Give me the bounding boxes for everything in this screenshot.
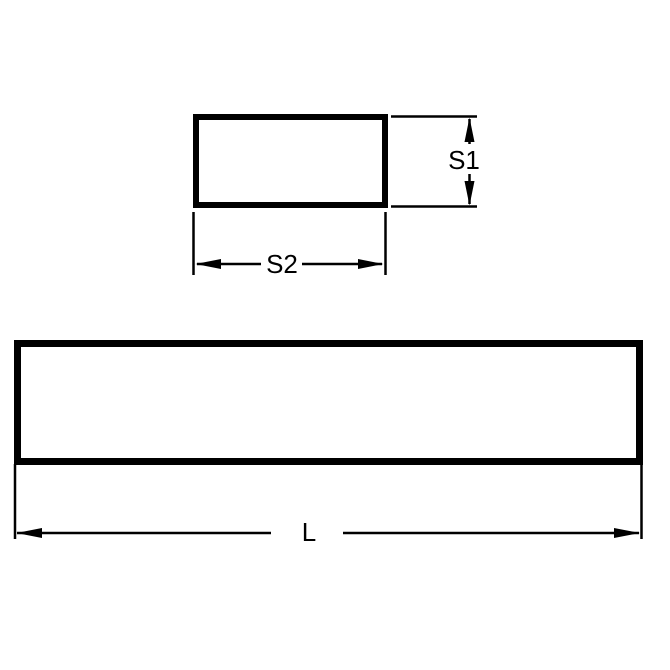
- s2-dimension: S2: [194, 212, 386, 279]
- s1-dimension-label: S1: [448, 145, 480, 175]
- s1-arrowhead-down-icon: [465, 181, 475, 206]
- drawing-canvas: S1 S2 L: [0, 0, 670, 670]
- technical-drawing: S1 S2 L: [0, 0, 670, 670]
- cross-section-view: S1 S2: [194, 117, 480, 280]
- side-view-rectangle: [18, 344, 640, 462]
- cross-section-rectangle: [196, 117, 385, 205]
- s2-dimension-label: S2: [266, 249, 298, 279]
- side-view: L: [15, 344, 642, 548]
- length-arrowhead-right-icon: [614, 528, 640, 538]
- length-dimension-label: L: [302, 517, 316, 547]
- length-dimension: L: [15, 464, 642, 547]
- s2-arrowhead-left-icon: [196, 259, 222, 269]
- s2-arrowhead-right-icon: [358, 259, 384, 269]
- s1-dimension: S1: [391, 117, 480, 207]
- length-arrowhead-left-icon: [17, 528, 43, 538]
- s1-arrowhead-up-icon: [465, 118, 475, 143]
